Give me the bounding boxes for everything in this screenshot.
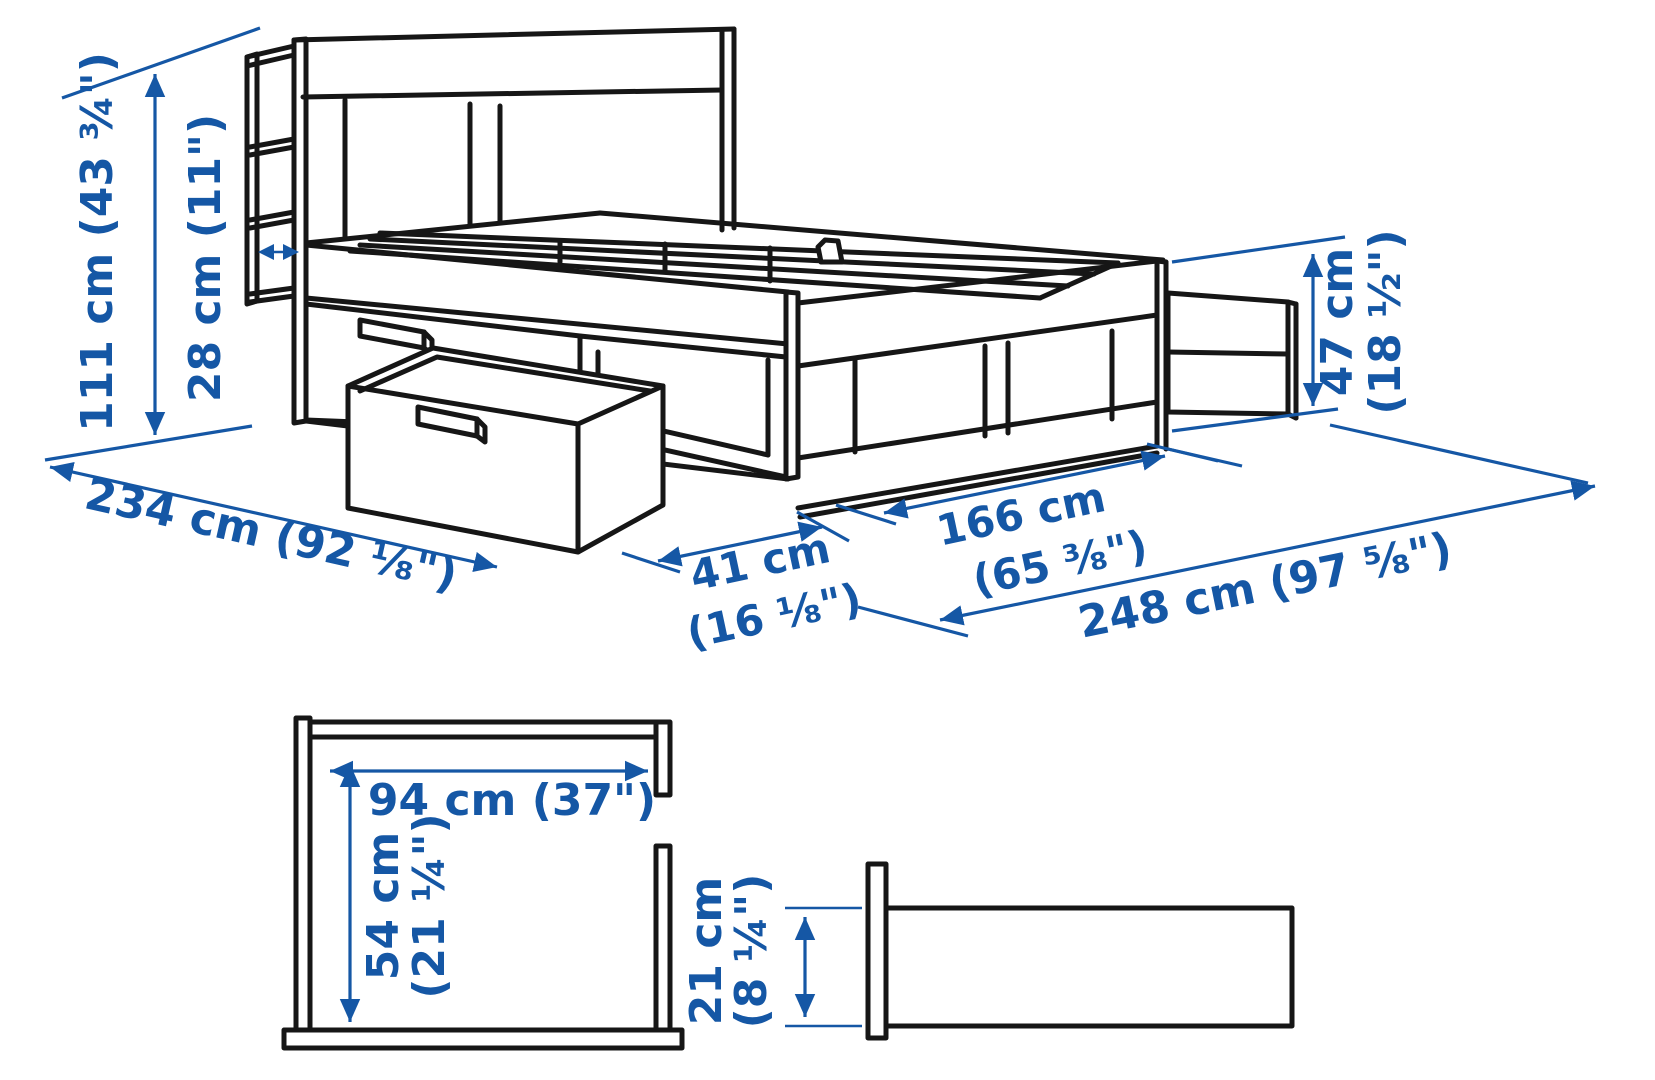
- dimension-headboard-depth: 28 cm (11"): [180, 114, 299, 402]
- witness-line: [1330, 425, 1588, 483]
- label-total-height: 111 cm (43 ¾"): [72, 52, 123, 432]
- shelf-board: [886, 908, 1292, 1026]
- witness-left: [858, 607, 968, 636]
- witness-foot: [1168, 449, 1242, 466]
- headboard-front-view: 94 cm (37") 54 cm (21 ¼"): [284, 718, 682, 1048]
- dimension-shelf-depth: 21 cm (8 ¼"): [681, 874, 862, 1029]
- left-post: [296, 718, 310, 1030]
- right-post-lower: [656, 846, 670, 1030]
- label-headboard-depth: 28 cm (11"): [180, 114, 231, 402]
- center-bracket: [818, 240, 842, 262]
- foot-drawer-cap-top: [1288, 302, 1296, 304]
- pulled-out-drawer: [348, 348, 663, 552]
- label-shelf-depth-in: (8 ¼"): [726, 874, 777, 1029]
- shelf-left-wall: [247, 54, 257, 304]
- witness-left: [622, 553, 680, 572]
- pulled-drawer-body: [348, 348, 663, 552]
- drawer-handle: [360, 320, 424, 348]
- shelf-side-view: 21 cm (8 ¼"): [681, 864, 1292, 1038]
- right-post-upper: [656, 722, 670, 795]
- headboard-shelf-column: [247, 46, 294, 304]
- foot-drawer-mid-line: [1168, 352, 1288, 354]
- mini-arrowhead-left: [258, 244, 274, 260]
- base-plate: [284, 1030, 682, 1048]
- foot-section-storage: [786, 261, 1166, 517]
- bed-dimension-diagram: 111 cm (43 ¾") 28 cm (11") 47 cm (18 ½")…: [0, 0, 1655, 1080]
- dimension-opening-width: 94 cm (37"): [330, 771, 656, 826]
- diagram-canvas: 111 cm (43 ¾") 28 cm (11") 47 cm (18 ½")…: [0, 0, 1655, 1080]
- foot-side-drawer: [1168, 293, 1296, 418]
- bed-3d-view: [247, 29, 1296, 552]
- label-drawer-height-in: (18 ½"): [1360, 229, 1411, 414]
- footboard-top-cap: [1157, 261, 1166, 262]
- right-band-upper: [798, 315, 1157, 366]
- label-shelf-depth-cm: 21 cm: [681, 877, 732, 1025]
- dimension-drawer-pullout: 41 cm (16 ⅛"): [622, 512, 866, 658]
- right-band-lower: [798, 402, 1157, 458]
- witness-left: [836, 505, 896, 524]
- label-opening-height-cm: 54 cm: [358, 832, 409, 980]
- headboard-plate: [868, 864, 886, 1038]
- headboard-rail-bottom: [303, 90, 722, 97]
- corner-post: [786, 292, 798, 479]
- label-opening-height-in: (21 ¼"): [404, 813, 455, 998]
- mattress-platform: [306, 213, 1163, 298]
- label-drawer-height-cm: 47 cm: [1312, 248, 1363, 396]
- dimension-drawer-height: 47 cm (18 ½"): [1172, 229, 1588, 483]
- headboard-top-edge: [294, 29, 734, 40]
